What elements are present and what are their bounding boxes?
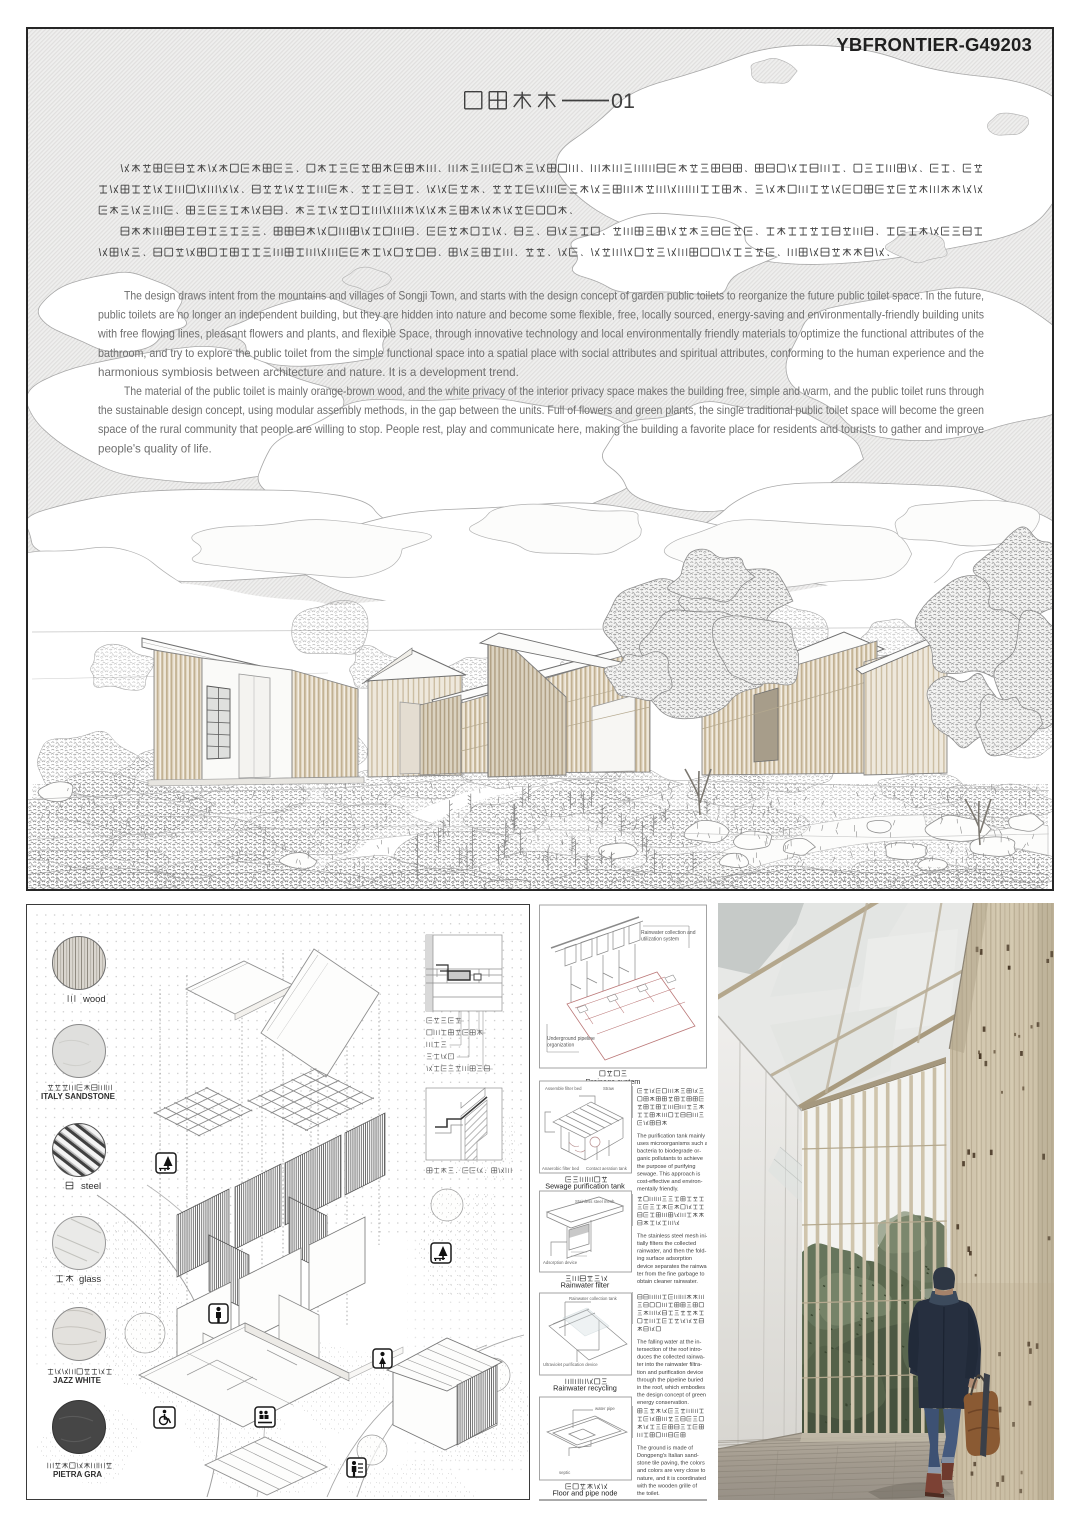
svg-text:device separates the rainwa-: device separates the rainwa- — [637, 1264, 707, 1270]
svg-text:glass: glass — [79, 1274, 101, 1285]
svg-text:utilization system: utilization system — [641, 937, 679, 943]
svg-text:Anaerobic filter bed: Anaerobic filter bed — [542, 1166, 580, 1171]
svg-text:steel: steel — [81, 1181, 101, 1192]
svg-text:YBFRONTIER-G49203: YBFRONTIER-G49203 — [836, 34, 1032, 55]
svg-text:cost-effective and environ-: cost-effective and environ- — [637, 1179, 703, 1185]
svg-text:Sewage purification tank: Sewage purification tank — [545, 1182, 625, 1191]
svg-text:mentally friendly.: mentally friendly. — [637, 1187, 679, 1193]
svg-text:the toilet.: the toilet. — [637, 1491, 660, 1497]
svg-text:The purification tank mainly: The purification tank mainly — [637, 1133, 705, 1139]
svg-text:with free flowing lines, pleas: with free flowing lines, pleasant flower… — [97, 328, 984, 341]
svg-text:septic: septic — [559, 1470, 571, 1475]
svg-text:The ground is made of: The ground is made of — [637, 1445, 693, 1451]
svg-text:uses microorganisms such as: uses microorganisms such as — [637, 1141, 707, 1147]
svg-text:rainwater, and then the fold-: rainwater, and then the fold- — [637, 1249, 706, 1255]
svg-text:with the wooden grille of: with the wooden grille of — [636, 1483, 697, 1489]
svg-text:ITALY SANDSTONE: ITALY SANDSTONE — [41, 1092, 116, 1101]
svg-text:tion and purification device: tion and purification device — [637, 1370, 703, 1376]
svg-text:harmonious symbiosis between a: harmonious symbiosis between architectur… — [98, 366, 519, 379]
svg-text:PIETRA GRA: PIETRA GRA — [53, 1470, 102, 1479]
svg-text:water pipe: water pipe — [595, 1406, 615, 1411]
svg-text:through the pipeline buried: through the pipeline buried — [637, 1377, 703, 1383]
svg-text:JAZZ WHITE: JAZZ WHITE — [53, 1376, 102, 1385]
svg-text:Rainwater filter: Rainwater filter — [561, 1281, 610, 1290]
svg-text:ter into the rainwater filtra-: ter into the rainwater filtra- — [637, 1362, 702, 1368]
svg-text:Adsorption device: Adsorption device — [543, 1260, 578, 1265]
svg-text:Dongpeng's Italian sand-: Dongpeng's Italian sand- — [637, 1453, 699, 1459]
svg-text:The design draws intent from t: The design draws intent from the mountai… — [124, 290, 984, 303]
svg-text:and colors are very close to: and colors are very close to — [637, 1468, 705, 1474]
svg-text:The falling water at the in-: The falling water at the in- — [637, 1339, 701, 1345]
svg-text:ing surface adsorption: ing surface adsorption — [637, 1256, 692, 1262]
svg-text:Rainwater collection tank: Rainwater collection tank — [569, 1296, 618, 1301]
svg-text:energy conservation.: energy conservation. — [637, 1400, 689, 1406]
svg-text:The material of the public toi: The material of the public toilet is mai… — [124, 385, 984, 398]
svg-text:the sustainable design concept: the sustainable design concept, using mo… — [98, 404, 984, 417]
svg-text:public toilets are no longer a: public toilets are no longer an independ… — [98, 309, 984, 322]
svg-text:sewage. This approach is: sewage. This approach is — [637, 1171, 701, 1177]
svg-text:in the roof, which embodies: in the roof, which embodies — [637, 1385, 705, 1391]
svg-text:space of the rural community t: space of the rural community that people… — [98, 423, 984, 436]
svg-text:Rainwater recycling: Rainwater recycling — [553, 1384, 617, 1393]
svg-text:bathroom, and try to explore t: bathroom, and try to explore the public … — [98, 347, 984, 360]
svg-text:Straw: Straw — [603, 1086, 615, 1091]
svg-text:the design concept of green: the design concept of green — [637, 1393, 706, 1399]
svg-text:ganic pollutants to achieve: ganic pollutants to achieve — [637, 1156, 703, 1162]
svg-text:Rainwater collection and: Rainwater collection and — [641, 930, 696, 936]
svg-text:ter from the fine garbage to: ter from the fine garbage to — [637, 1271, 704, 1277]
svg-text:The stainless steel mesh ini-: The stainless steel mesh ini- — [637, 1233, 707, 1239]
svg-text:Assemble filter bed: Assemble filter bed — [545, 1086, 582, 1091]
svg-text:nature, and it is coordinated: nature, and it is coordinated — [637, 1476, 706, 1482]
svg-text:Floor and pipe node: Floor and pipe node — [553, 1489, 618, 1498]
svg-text:01: 01 — [611, 89, 635, 113]
svg-text:organization: organization — [547, 1043, 574, 1049]
svg-text:the purpose of purifying: the purpose of purifying — [637, 1164, 695, 1170]
svg-text:Contact aeration tank: Contact aeration tank — [586, 1166, 628, 1171]
svg-text:Underground pipeline: Underground pipeline — [547, 1036, 595, 1042]
svg-text:Ultraviolet purification devic: Ultraviolet purification device — [543, 1362, 598, 1367]
svg-text:tially filters the collected: tially filters the collected — [637, 1241, 696, 1247]
svg-text:Stainless steel mesh: Stainless steel mesh — [575, 1199, 615, 1204]
svg-text:stone tile paving, the colors: stone tile paving, the colors — [637, 1461, 705, 1467]
svg-text:duces the collected rainwa-: duces the collected rainwa- — [637, 1355, 705, 1361]
svg-text:people's quality of life.: people's quality of life. — [98, 442, 212, 455]
svg-text:wood: wood — [82, 994, 106, 1005]
svg-text:obtain cleaner rainwater.: obtain cleaner rainwater. — [637, 1279, 698, 1285]
svg-text:bacteria to biodegrade or-: bacteria to biodegrade or- — [637, 1149, 701, 1155]
svg-text:tersection of the roof intro-: tersection of the roof intro- — [637, 1347, 702, 1353]
